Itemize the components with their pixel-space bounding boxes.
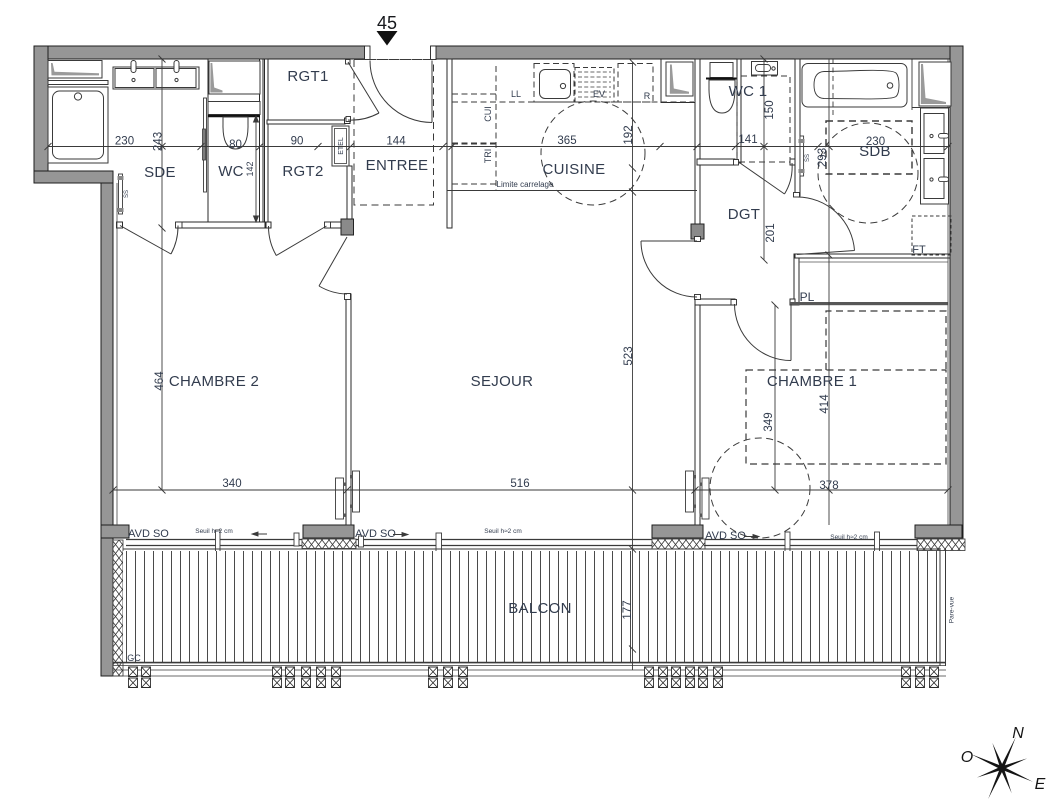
svg-text:O: O — [961, 749, 973, 766]
svg-text:WC: WC — [218, 163, 244, 180]
svg-text:340: 340 — [222, 478, 241, 490]
svg-text:516: 516 — [510, 478, 529, 490]
svg-text:SDB: SDB — [859, 143, 891, 160]
svg-text:AVD SO: AVD SO — [705, 530, 746, 542]
svg-text:464: 464 — [154, 371, 166, 391]
svg-text:R: R — [644, 91, 651, 101]
svg-text:CUI: CUI — [483, 106, 493, 122]
svg-text:E: E — [1035, 776, 1046, 793]
svg-text:LL: LL — [511, 89, 521, 99]
svg-text:141: 141 — [738, 134, 757, 146]
svg-text:Pare-vue: Pare-vue — [949, 596, 956, 623]
svg-text:ETEL: ETEL — [338, 137, 345, 155]
svg-text:201: 201 — [765, 223, 777, 242]
svg-text:293: 293 — [817, 148, 829, 167]
svg-text:192: 192 — [623, 125, 635, 144]
svg-text:177: 177 — [622, 600, 634, 619]
svg-text:FT: FT — [912, 244, 926, 256]
svg-text:230: 230 — [115, 136, 134, 148]
svg-text:142: 142 — [245, 161, 255, 176]
svg-text:ENTREE: ENTREE — [366, 157, 429, 174]
svg-text:BALCON: BALCON — [508, 600, 572, 617]
svg-text:150: 150 — [764, 100, 776, 119]
svg-text:SS: SS — [124, 190, 130, 198]
svg-text:N: N — [1012, 725, 1024, 742]
svg-text:EV: EV — [593, 89, 605, 99]
svg-text:CUISINE: CUISINE — [543, 161, 606, 178]
svg-text:TRI: TRI — [483, 149, 493, 164]
svg-text:523: 523 — [623, 346, 635, 365]
svg-text:45: 45 — [377, 13, 397, 33]
svg-text:Seuil h≈2 cm: Seuil h≈2 cm — [830, 534, 868, 541]
svg-text:CHAMBRE 2: CHAMBRE 2 — [169, 373, 259, 390]
svg-text:AVD SO: AVD SO — [355, 528, 396, 540]
svg-text:RGT2: RGT2 — [282, 163, 323, 180]
svg-text:243: 243 — [153, 132, 165, 151]
svg-text:Seuil h≈2 cm: Seuil h≈2 cm — [484, 528, 522, 535]
svg-text:WC 1: WC 1 — [729, 83, 768, 100]
svg-text:365: 365 — [557, 135, 576, 147]
svg-text:GC: GC — [127, 653, 141, 663]
svg-text:AVD SO: AVD SO — [128, 528, 169, 540]
svg-text:CHAMBRE 1: CHAMBRE 1 — [767, 373, 857, 390]
svg-text:Limite carrelage: Limite carrelage — [497, 180, 554, 189]
svg-text:SEJOUR: SEJOUR — [471, 373, 534, 390]
svg-text:Seuil h≈2 cm: Seuil h≈2 cm — [195, 528, 233, 535]
svg-text:349: 349 — [763, 412, 775, 431]
svg-text:DGT: DGT — [728, 206, 761, 223]
svg-text:RGT1: RGT1 — [287, 68, 328, 85]
svg-text:SDE: SDE — [144, 164, 176, 181]
svg-text:PL: PL — [800, 290, 815, 304]
svg-text:414: 414 — [819, 394, 831, 414]
svg-text:90: 90 — [291, 136, 304, 148]
svg-text:378: 378 — [819, 480, 838, 492]
svg-text:144: 144 — [386, 136, 406, 148]
svg-text:SS: SS — [805, 154, 811, 162]
svg-text:80: 80 — [229, 139, 242, 151]
